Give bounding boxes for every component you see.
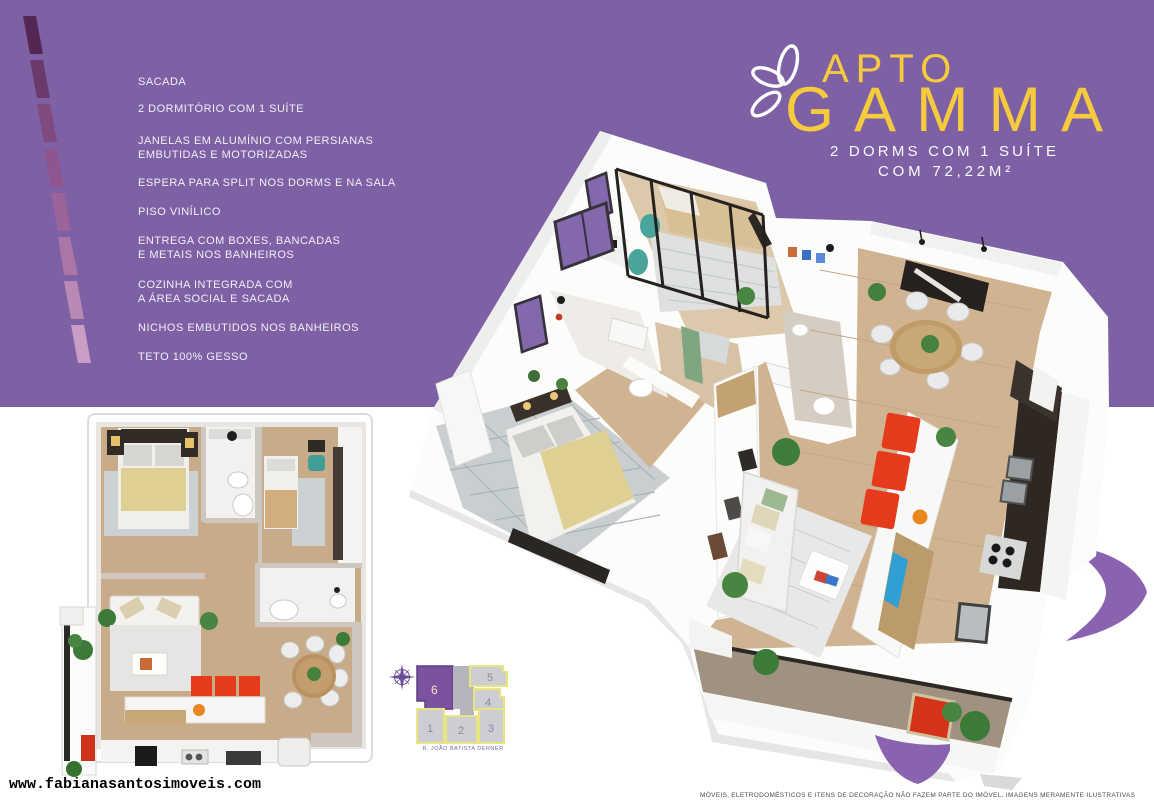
svg-text:2: 2	[458, 725, 464, 737]
svg-text:5: 5	[487, 672, 493, 684]
svg-text:3: 3	[488, 723, 494, 735]
svg-text:1: 1	[427, 723, 433, 735]
svg-text:4: 4	[485, 697, 491, 709]
svg-text:6: 6	[431, 683, 438, 697]
